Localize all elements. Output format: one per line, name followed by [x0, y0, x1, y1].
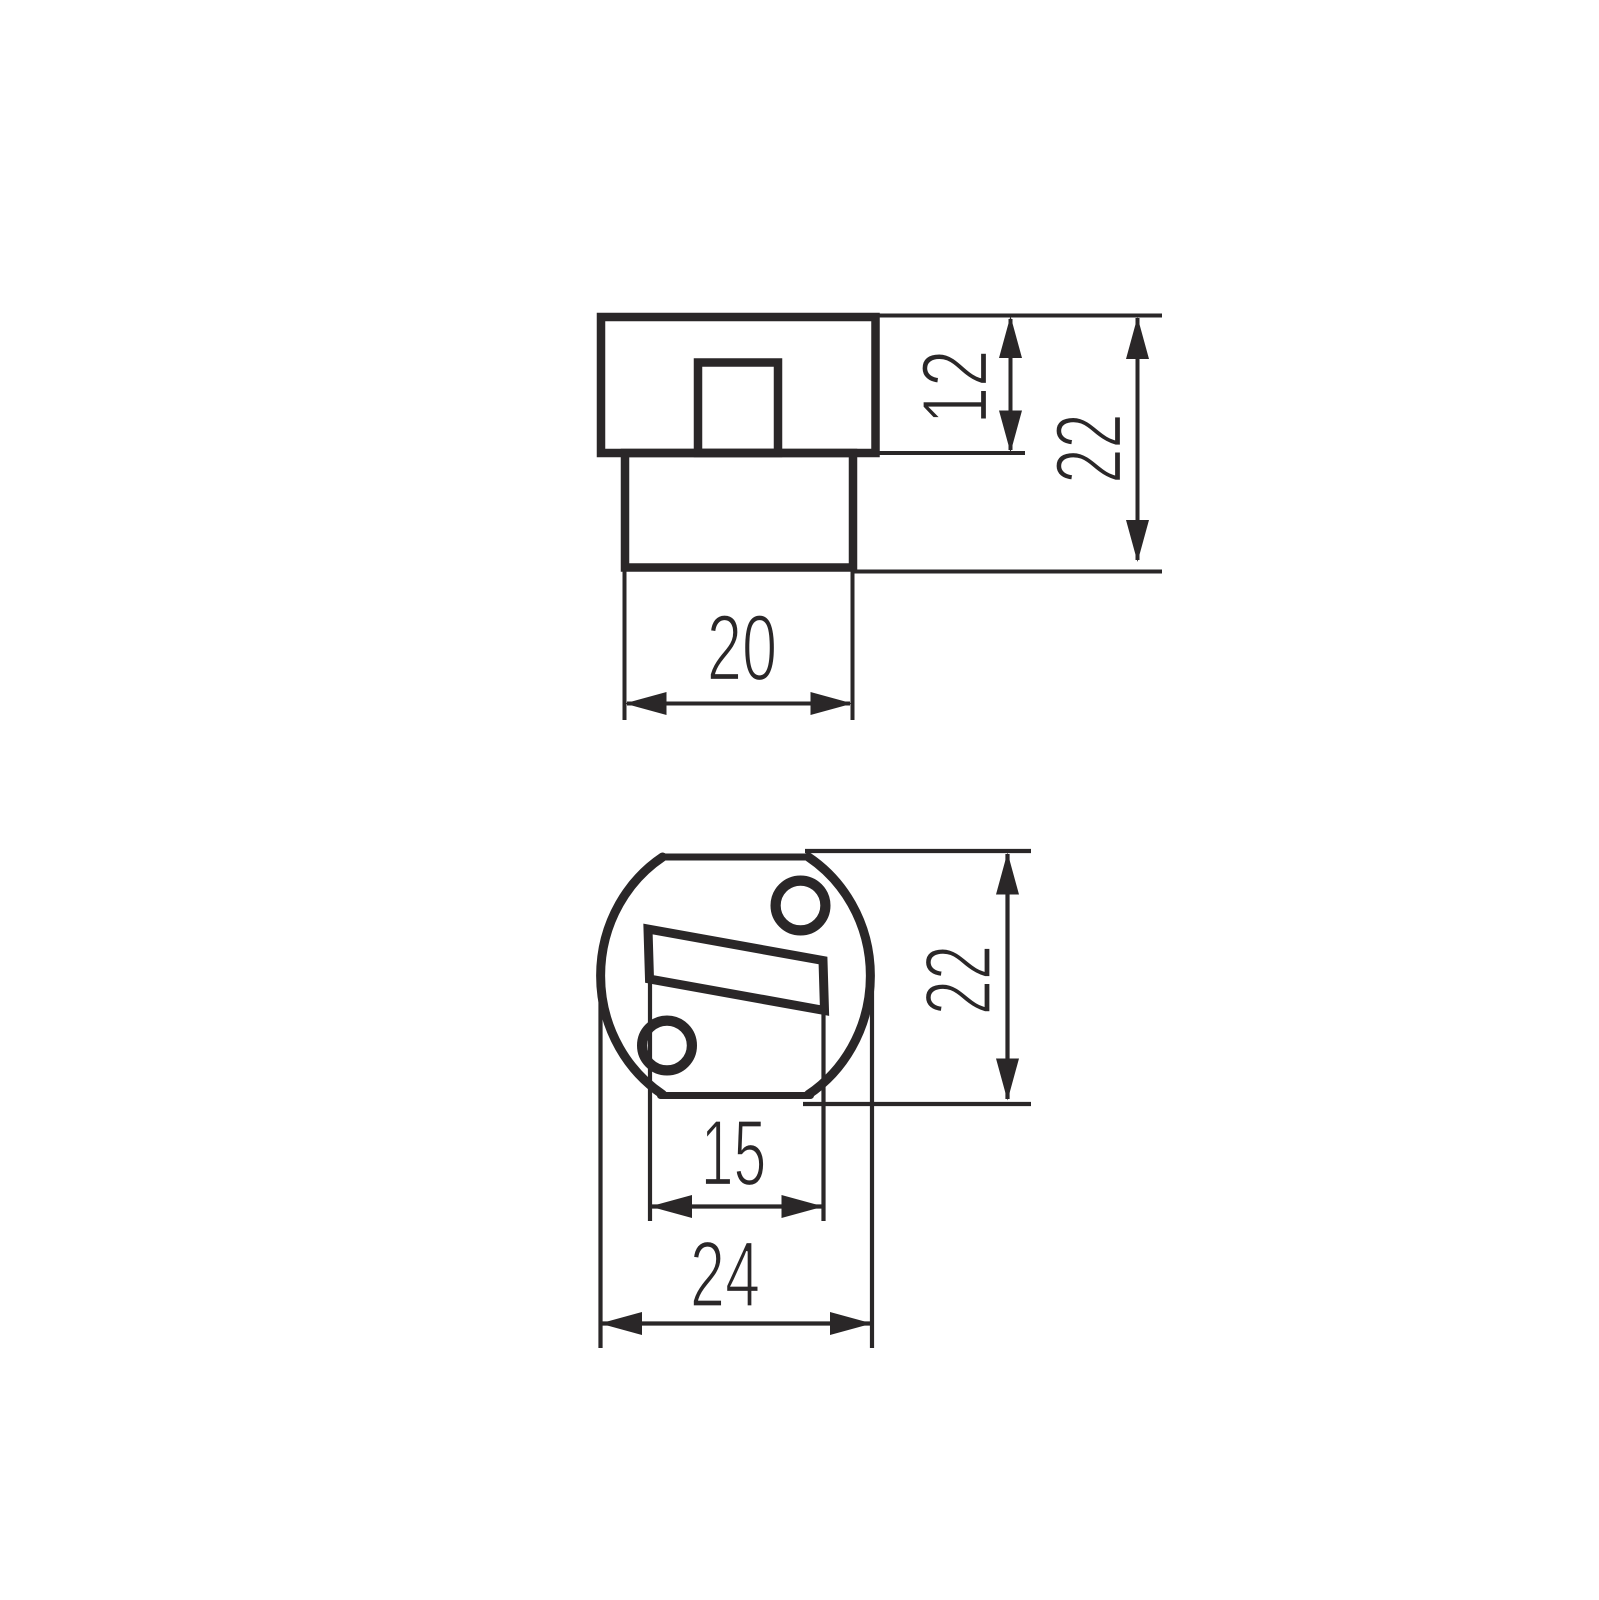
svg-text:12: 12: [903, 350, 1007, 425]
svg-text:20: 20: [707, 596, 777, 700]
svg-text:24: 24: [690, 1222, 760, 1326]
svg-text:22: 22: [906, 945, 1010, 1015]
svg-text:22: 22: [1037, 413, 1141, 483]
svg-text:15: 15: [701, 1100, 767, 1205]
